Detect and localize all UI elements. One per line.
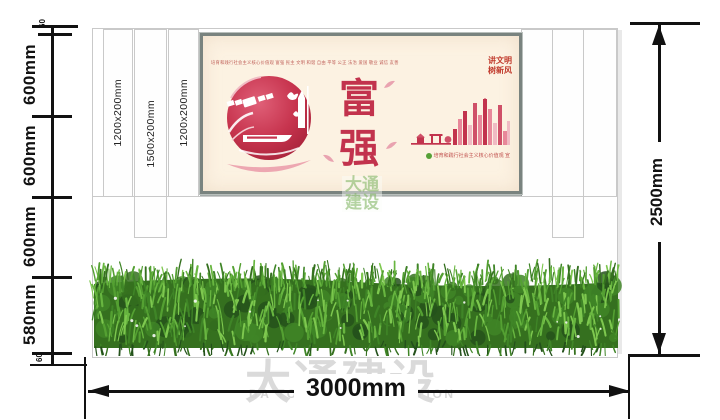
dim-left-tick — [38, 33, 72, 36]
credit-text: 培育和践行社会主义核心价值观 宣 — [434, 152, 510, 159]
papercut-circle-illustration — [219, 72, 319, 178]
arrow-right-icon — [609, 385, 630, 397]
dim-label-60-bottom: 60 — [35, 349, 44, 366]
civility-slogan: 讲文明 树新风 — [488, 56, 512, 75]
strip-size-label: 1200x200mm — [178, 79, 190, 147]
arrow-left-icon — [88, 385, 109, 397]
dim-right-tick-bottom — [628, 354, 700, 357]
elevation-drawing: 1200x200mm 1500x200mm 1200x200mm 培育和践行社会… — [0, 0, 720, 420]
strip-size-label: 1200x200mm — [112, 79, 124, 147]
city-skyline-graphic — [411, 98, 513, 152]
dim-label-600-1: 600mm — [20, 33, 40, 115]
dim-label-600-3: 600mm — [20, 196, 40, 276]
dim-label-60-top: 60 — [38, 15, 47, 32]
char-qiang: 强 — [335, 126, 383, 172]
wall-strip-right-1 — [521, 29, 553, 197]
strip-size-label: 1500x200mm — [145, 100, 157, 168]
culture-wall-poster: 培育和践行社会主义核心价值观 富强 民主 文明 和谐 自由 平等 公正 法治 爱… — [200, 33, 522, 194]
dim-label-600-2: 600mm — [20, 115, 40, 196]
watermark-center: 大通 建设 — [342, 176, 382, 212]
watermark-center-line1: 大通 — [342, 176, 382, 194]
slogan-line-2: 树新风 — [488, 66, 512, 76]
credit-line: 培育和践行社会主义核心价值观 宣 — [426, 152, 510, 159]
fuqiang-characters: 富 强 — [335, 76, 383, 172]
char-fu: 富 — [335, 76, 383, 122]
arrow-up-icon — [652, 25, 666, 45]
dim-bottom-ext-left — [84, 357, 86, 419]
watermark-center-line2: 建设 — [342, 194, 382, 212]
hedge-plants — [88, 258, 624, 356]
leaf-accent-icon — [321, 152, 335, 164]
dim-label-2500: 2500mm — [646, 142, 668, 242]
slogan-line-1: 讲文明 — [488, 56, 512, 66]
wall-strip-right-2 — [552, 29, 584, 238]
arrow-down-icon — [652, 333, 666, 353]
wall-strip-right-3 — [583, 29, 617, 197]
green-seal-icon — [426, 153, 432, 159]
core-values-text-line: 培育和践行社会主义核心价值观 富强 民主 文明 和谐 自由 平等 公正 法治 爱… — [211, 60, 399, 66]
wall-strip-left-2: 1500x200mm — [134, 29, 167, 238]
wall-strip-left-1: 1200x200mm — [103, 29, 133, 197]
poster-artwork: 培育和践行社会主义核心价值观 富强 民主 文明 和谐 自由 平等 公正 法治 爱… — [203, 36, 519, 191]
wall-strip-left-3: 1200x200mm — [168, 29, 199, 197]
leaf-accent-icon — [385, 140, 398, 152]
leaf-accent-icon — [383, 78, 397, 90]
dim-label-580: 580mm — [20, 276, 40, 352]
dim-label-3000: 3000mm — [294, 374, 418, 403]
